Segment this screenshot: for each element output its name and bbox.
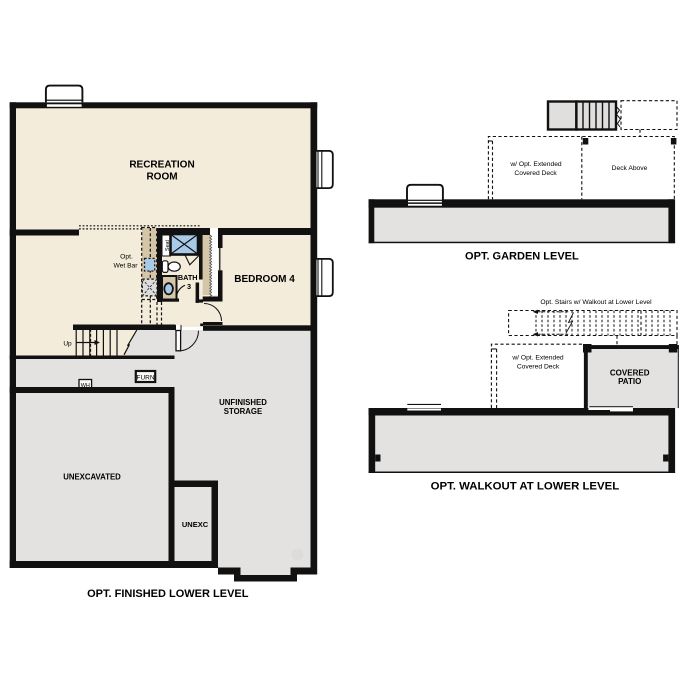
svg-text:Covered Deck: Covered Deck — [514, 170, 557, 177]
svg-text:ROOM: ROOM — [146, 171, 177, 182]
svg-text:OPT. FINISHED LOWER LEVEL: OPT. FINISHED LOWER LEVEL — [87, 588, 249, 600]
svg-text:3: 3 — [187, 282, 191, 291]
svg-text:OPT. WALKOUT AT LOWER LEVEL: OPT. WALKOUT AT LOWER LEVEL — [431, 481, 620, 493]
svg-text:Wet Bar: Wet Bar — [113, 263, 138, 270]
svg-text:w/ Opt. Extended: w/ Opt. Extended — [511, 355, 564, 362]
svg-text:FURN: FURN — [136, 375, 154, 382]
svg-text:Covered Deck: Covered Deck — [517, 364, 560, 371]
svg-text:Opt. Stairs w/ Walkout at Lowe: Opt. Stairs w/ Walkout at Lower Level — [540, 299, 652, 306]
svg-text:BEDROOM 4: BEDROOM 4 — [234, 274, 295, 285]
svg-text:UNFINISHED: UNFINISHED — [219, 398, 267, 407]
svg-text:w/ Opt. Extended: w/ Opt. Extended — [509, 161, 562, 168]
svg-text:RECREATION: RECREATION — [129, 160, 194, 171]
svg-text:PATIO: PATIO — [618, 377, 641, 386]
svg-text:UNEXCAVATED: UNEXCAVATED — [63, 473, 121, 482]
svg-text:OPT. GARDEN LEVEL: OPT. GARDEN LEVEL — [465, 251, 579, 263]
svg-text:BATH: BATH — [178, 273, 198, 282]
svg-text:Deck Above: Deck Above — [612, 165, 648, 172]
svg-text:Up: Up — [63, 340, 72, 347]
svg-text:STORAGE: STORAGE — [224, 407, 262, 416]
svg-text:UNEXC: UNEXC — [182, 520, 209, 529]
svg-text:Opt.: Opt. — [120, 254, 133, 261]
